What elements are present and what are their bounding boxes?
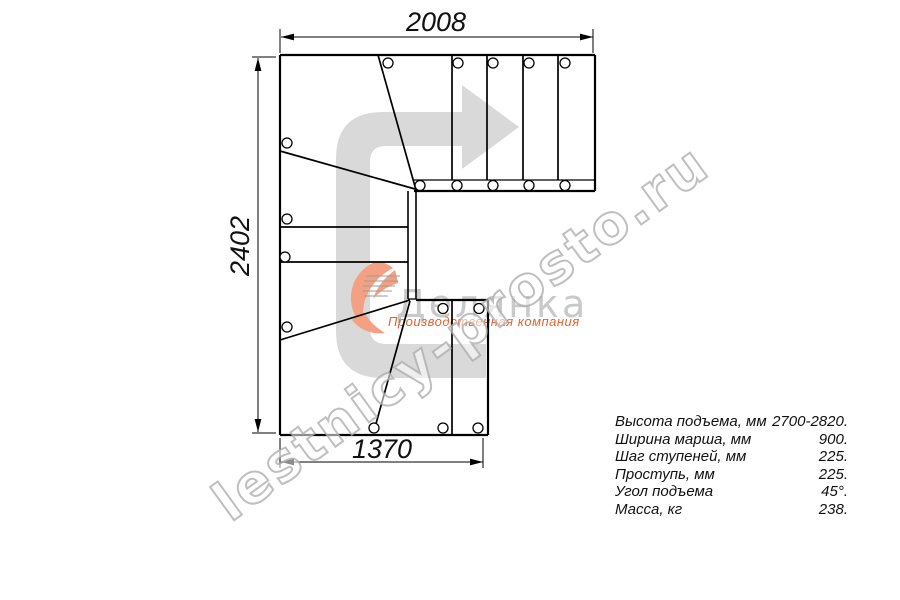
screw-hole [438,423,448,433]
screw-hole [560,181,570,191]
spec-row: Высота подъема, мм 2700-2820. [615,413,848,431]
spec-table: Высота подъема, мм 2700-2820. Ширина мар… [615,413,848,519]
spec-label: Масса, кг [615,501,682,519]
screw-hole [524,58,534,68]
spec-value: 900. [819,431,848,449]
screw-hole [282,138,292,148]
screw-hole [369,423,379,433]
step-edges [280,55,558,435]
spec-row: Масса, кг 238. [615,501,848,519]
spec-label: Высота подъема, мм [615,413,767,431]
dimension-bottom-label: 1370 [352,434,412,464]
spec-row: Шаг ступеней, мм 225. [615,448,848,466]
screw-hole [524,181,534,191]
dimension-left: 2402 [225,57,276,433]
screw-hole [415,181,425,191]
spec-value: 45°. [821,483,848,501]
dim-arrowhead [281,459,294,466]
screw-hole-markers [280,58,570,433]
dimension-top-label: 2008 [405,7,466,37]
dimension-bottom: 1370 [280,434,483,468]
screw-hole [453,58,463,68]
spec-value: 225. [819,466,848,484]
spec-row: Ширина марша, мм 900. [615,431,848,449]
screw-hole [452,181,462,191]
stair-plan-drawing: Делянка Производственная компания [0,0,900,600]
dim-arrowhead [470,459,483,466]
spec-label: Угол подъема [615,483,713,501]
screw-hole [282,214,292,224]
screw-hole [473,423,483,433]
screw-hole [438,304,448,314]
spec-label: Ширина марша, мм [615,431,751,449]
spec-row: Проступь, мм 225. [615,466,848,484]
screw-hole [282,322,292,332]
spec-value: 2700-2820. [772,413,848,431]
dim-arrowhead [255,419,262,432]
spec-value: 225. [819,448,848,466]
staircase-outline [280,55,595,435]
spec-value: 238. [819,501,848,519]
spec-label: Проступь, мм [615,466,715,484]
screw-hole [488,181,498,191]
spec-label: Шаг ступеней, мм [615,448,746,466]
dim-arrowhead [281,34,294,41]
dim-arrowhead [580,34,593,41]
screw-hole [474,304,484,314]
spec-row: Угол подъема 45°. [615,483,848,501]
dimension-left-label: 2402 [225,216,255,277]
screw-hole [560,58,570,68]
screw-hole [280,252,290,262]
screw-hole [383,58,393,68]
dimension-top: 2008 [280,7,593,53]
dim-arrowhead [255,58,262,71]
stringer-lines [408,180,595,299]
screw-hole [488,58,498,68]
